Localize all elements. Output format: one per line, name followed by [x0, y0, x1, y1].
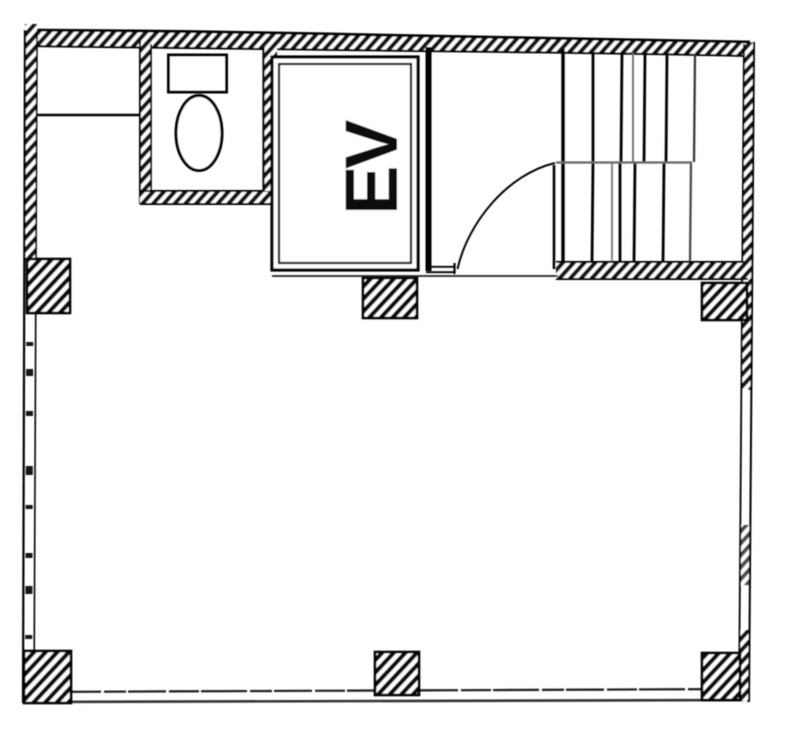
svg-text:EV: EV [330, 120, 413, 215]
